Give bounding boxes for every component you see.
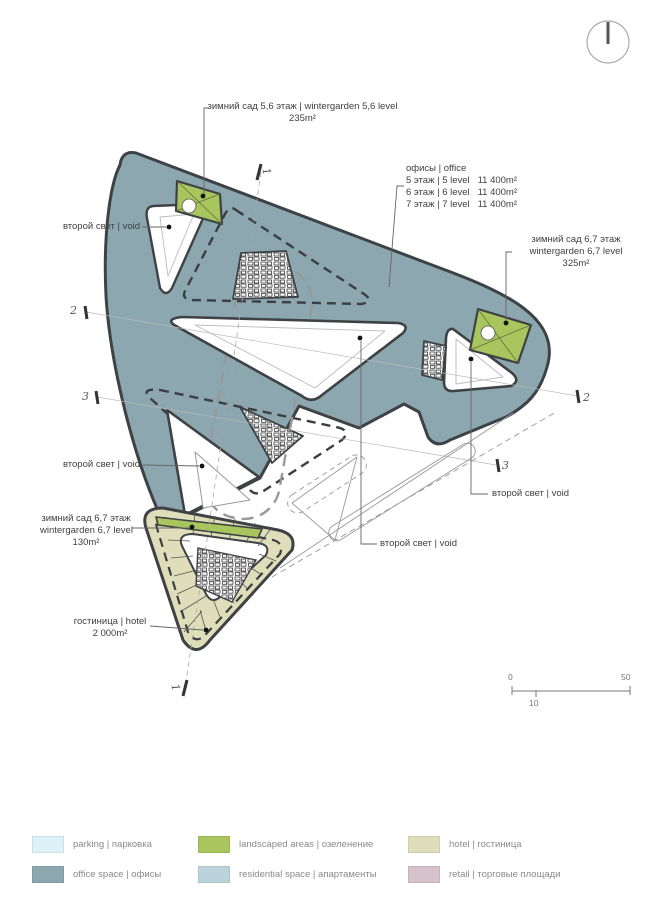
section-mark-2-right: 2 bbox=[583, 391, 590, 404]
label-wintergarden-67-left: зимний сад 6,7 этаж wintergarden 6,7 lev… bbox=[40, 513, 132, 549]
section-mark-3-right: 3 bbox=[502, 459, 509, 472]
label-wintergarden-67-right: зимний сад 6,7 этаж wintergarden 6,7 lev… bbox=[512, 234, 640, 270]
tree-icon bbox=[182, 199, 196, 213]
legend-item-parking: parking | парковка bbox=[32, 836, 152, 853]
parking-swatch bbox=[32, 836, 64, 853]
label-void-left: второй свет | void bbox=[30, 459, 140, 471]
scale-start: 0 bbox=[508, 672, 513, 682]
scale-mid: 10 bbox=[529, 698, 538, 708]
legend-item-landscaped: landscaped areas | озеленение bbox=[198, 836, 373, 853]
label-void-right: второй свет | void bbox=[492, 488, 569, 500]
label-office-areas: офисы | office 5 этаж | 5 level 11 400m²… bbox=[406, 163, 517, 211]
north-indicator-icon bbox=[587, 21, 629, 63]
landscaped-swatch bbox=[198, 836, 230, 853]
scale-end: 50 bbox=[621, 672, 630, 682]
residential-swatch bbox=[198, 866, 230, 883]
office-swatch bbox=[32, 866, 64, 883]
legend-item-retail: retail | торговые площади bbox=[408, 866, 561, 883]
label-hotel: гостиница | hotel 2 000m² bbox=[70, 616, 150, 640]
site-plan-drawing bbox=[0, 0, 650, 897]
section-mark-3-left: 3 bbox=[82, 390, 89, 403]
hotel-swatch bbox=[408, 836, 440, 853]
legend-item-office: office space | офисы bbox=[32, 866, 161, 883]
label-wintergarden-56: зимний сад 5,6 этаж | wintergarden 5,6 l… bbox=[205, 101, 400, 125]
scale-bar bbox=[512, 686, 630, 697]
section-mark-2-left: 2 bbox=[70, 304, 77, 317]
legend-item-residential: residential space | апартаменты bbox=[198, 866, 377, 883]
architectural-floor-plan: зимний сад 5,6 этаж | wintergarden 5,6 l… bbox=[0, 0, 650, 897]
label-void-top-left: второй свет | void bbox=[30, 221, 140, 233]
tree-icon bbox=[481, 326, 495, 340]
retail-swatch bbox=[408, 866, 440, 883]
label-void-center: второй свет | void bbox=[380, 538, 457, 550]
legend-item-hotel: hotel | гостиница bbox=[408, 836, 522, 853]
